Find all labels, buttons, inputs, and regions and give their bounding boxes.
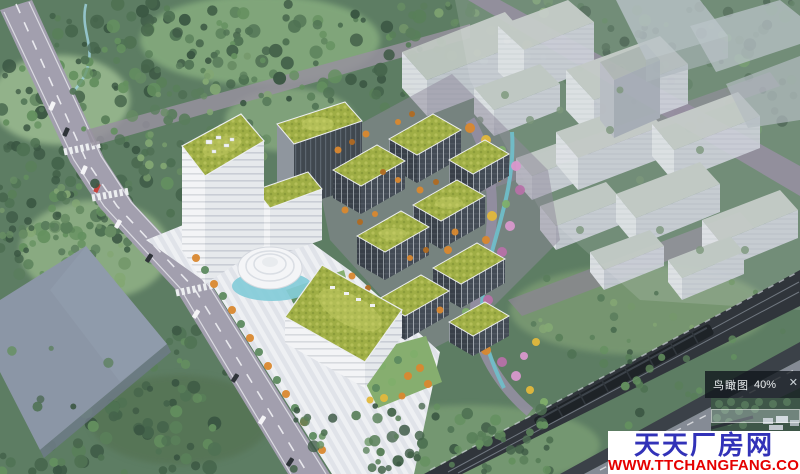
navigator-title: 鸟瞰图: [713, 377, 749, 393]
navigator-header[interactable]: 鸟瞰图 40% ✕: [705, 371, 800, 398]
aerial-image-viewer[interactable]: 鸟瞰图 40% ✕ 天天厂房网 WWW.TTCHANGFANG.COM: [0, 0, 800, 474]
zoom-level: 40%: [754, 379, 776, 391]
thumbnail-image: [711, 398, 800, 431]
navigator-thumbnail[interactable]: [711, 398, 800, 431]
watermark: 天天厂房网 WWW.TTCHANGFANG.COM: [608, 431, 800, 474]
aerial-rendering: [0, 0, 800, 474]
watermark-url: WWW.TTCHANGFANG.COM: [608, 459, 800, 473]
navigator-viewport: [712, 410, 800, 423]
close-icon[interactable]: ✕: [789, 378, 798, 389]
navigator-panel[interactable]: 鸟瞰图 40% ✕: [705, 371, 800, 431]
watermark-brand: 天天厂房网: [608, 432, 800, 459]
